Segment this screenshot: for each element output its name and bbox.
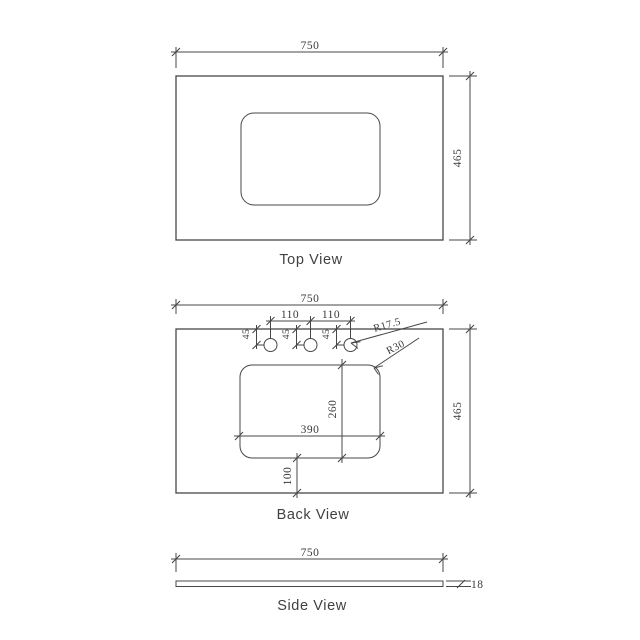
top-view-depth-dimension: 465 (449, 71, 477, 245)
thickness-label: 18 (471, 579, 484, 591)
cutout-front-offset-dimension: 100 (282, 453, 301, 498)
cutout-width-dimension: 390 (234, 424, 385, 440)
top-view-width-label: 750 (301, 40, 320, 52)
cutout-corner-radius-leader: R30 (374, 338, 419, 375)
cutout-depth-dimension: 260 (327, 359, 346, 463)
side-view: 750 18 Side View (171, 547, 484, 614)
side-view-width-label: 750 (301, 547, 320, 559)
tap-hole-radius-label: R17.5 (372, 316, 402, 334)
tap-hole-right (344, 339, 357, 352)
top-view-basin-cutout (241, 113, 380, 205)
hole-offset-label-2: 45 (282, 329, 292, 340)
back-view-width-label: 750 (301, 293, 320, 305)
top-view-outline (176, 76, 443, 240)
back-view-width-dimension: 750 (171, 293, 448, 314)
side-view-profile (176, 581, 443, 587)
side-view-width-dimension: 750 (171, 547, 448, 572)
cutout-corner-radius-label: R30 (385, 339, 407, 357)
cutout-front-offset-label: 100 (282, 467, 294, 486)
tap-hole-spacing-dimension: 110 110 (266, 309, 355, 339)
back-view-depth-dimension: 465 (449, 324, 477, 498)
cutout-width-label: 390 (301, 424, 320, 436)
hole-spacing-right-label: 110 (322, 309, 340, 321)
tap-hole-center (304, 339, 317, 352)
back-view: 750 110 110 45 45 (171, 293, 477, 523)
back-view-basin-cutout (240, 365, 380, 458)
hole-spacing-left-label: 110 (281, 309, 299, 321)
top-view: 750 465 Top View (171, 40, 477, 268)
tap-hole-radius-leader: R17.5 (351, 316, 427, 348)
top-view-width-dimension: 750 (171, 40, 448, 68)
thickness-dimension: 18 (446, 579, 484, 591)
back-view-depth-label: 465 (452, 402, 464, 421)
tap-hole-left (264, 339, 277, 352)
cutout-depth-label: 260 (327, 400, 339, 419)
technical-drawing: 750 465 Top View 750 (0, 0, 640, 640)
back-view-title: Back View (277, 507, 350, 523)
side-view-title: Side View (277, 598, 347, 614)
back-view-outline (176, 329, 443, 493)
hole-offset-label-1: 45 (242, 329, 252, 340)
hole-offset-label-3: 45 (322, 329, 332, 340)
top-view-depth-label: 465 (452, 149, 464, 168)
drawing-canvas: 750 465 Top View 750 (0, 0, 640, 640)
top-view-title: Top View (279, 252, 342, 268)
